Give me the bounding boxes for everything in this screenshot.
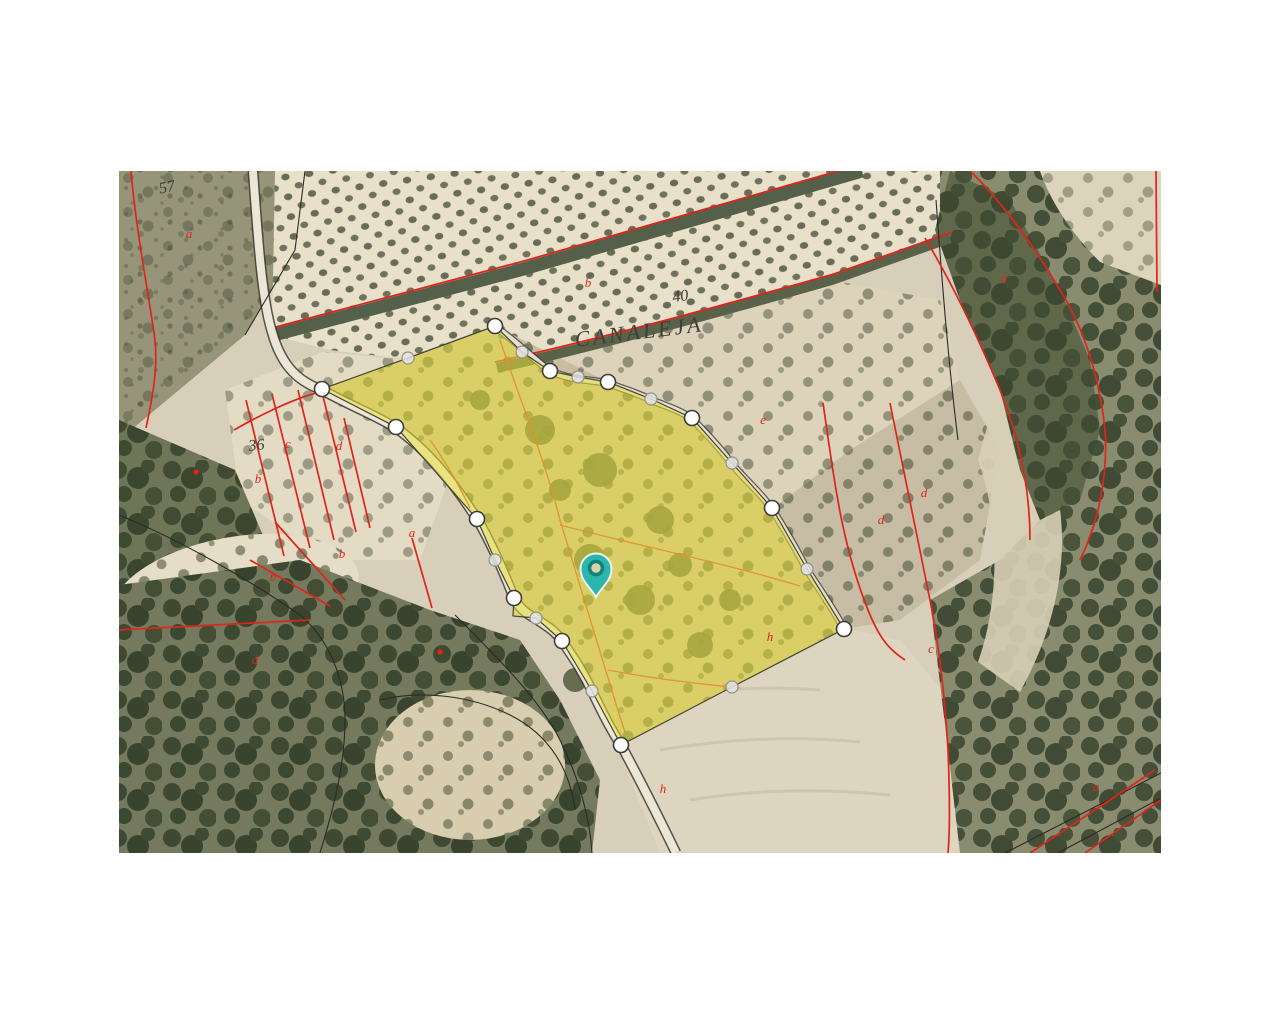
parcel-vertex[interactable] xyxy=(555,634,570,649)
parcel-vertex-minor[interactable] xyxy=(489,554,501,566)
cadastral-label: 40 xyxy=(671,287,689,306)
cadastral-label: b xyxy=(255,471,262,486)
parcel-vertex[interactable] xyxy=(837,622,852,637)
parcel-vertex[interactable] xyxy=(315,382,330,397)
parcel-vertex-minor[interactable] xyxy=(516,346,528,358)
cadastral-label: h xyxy=(660,781,667,796)
cadastral-label: a xyxy=(1001,270,1008,285)
parcel-vertex[interactable] xyxy=(601,375,616,390)
cadastral-label: e xyxy=(760,412,766,427)
cadastral-label: d xyxy=(336,438,343,453)
cadastral-label: b xyxy=(339,546,346,561)
cadastral-label: c xyxy=(285,436,291,451)
parcel-vertex[interactable] xyxy=(543,364,558,379)
cadastral-label: a xyxy=(409,525,416,540)
cadastral-label: d xyxy=(921,485,928,500)
cadastral-label: a xyxy=(186,226,193,241)
parcel-vertex-minor[interactable] xyxy=(530,612,542,624)
parcel-vertex-minor[interactable] xyxy=(586,685,598,697)
aerial-map[interactable]: 5740CANALEJA36abcdbabbdddechhaa xyxy=(102,163,1161,853)
parcel-vertex-minor[interactable] xyxy=(402,352,414,364)
parcel-vertex-minor[interactable] xyxy=(572,371,584,383)
cadastral-label: d xyxy=(878,512,885,527)
cadastral-label: h xyxy=(767,629,774,644)
cadastral-label: d xyxy=(252,652,259,667)
parcel-vertex-minor[interactable] xyxy=(726,681,738,693)
cadastral-label: b xyxy=(585,275,592,290)
parcel-vertex[interactable] xyxy=(765,501,780,516)
cadastral-label: b xyxy=(270,569,277,584)
parcel-vertex[interactable] xyxy=(470,512,485,527)
screenshot-stage: 5740CANALEJA36abcdbabbdddechhaa xyxy=(0,0,1280,1024)
parcel-vertex[interactable] xyxy=(507,591,522,606)
terrain-clearing-bottom-trees xyxy=(375,690,565,840)
cadastral-label: c xyxy=(928,641,934,656)
red-dot-marker xyxy=(193,469,198,474)
parcel-vertex[interactable] xyxy=(685,411,700,426)
parcel-vertex-minor[interactable] xyxy=(645,393,657,405)
cadastral-label: a xyxy=(1093,779,1100,794)
parcel-vertex-minor[interactable] xyxy=(801,563,813,575)
parcel-vertex[interactable] xyxy=(614,738,629,753)
cadastral-label: 36 xyxy=(247,436,266,455)
pin-hole xyxy=(590,562,603,575)
red-dot-marker xyxy=(437,649,442,654)
parcel-vertex-minor[interactable] xyxy=(726,457,738,469)
parcel-vertex[interactable] xyxy=(488,319,503,334)
map-canvas[interactable]: 5740CANALEJA36abcdbabbdddechhaa xyxy=(0,0,1280,1024)
parcel-vertex[interactable] xyxy=(389,420,404,435)
